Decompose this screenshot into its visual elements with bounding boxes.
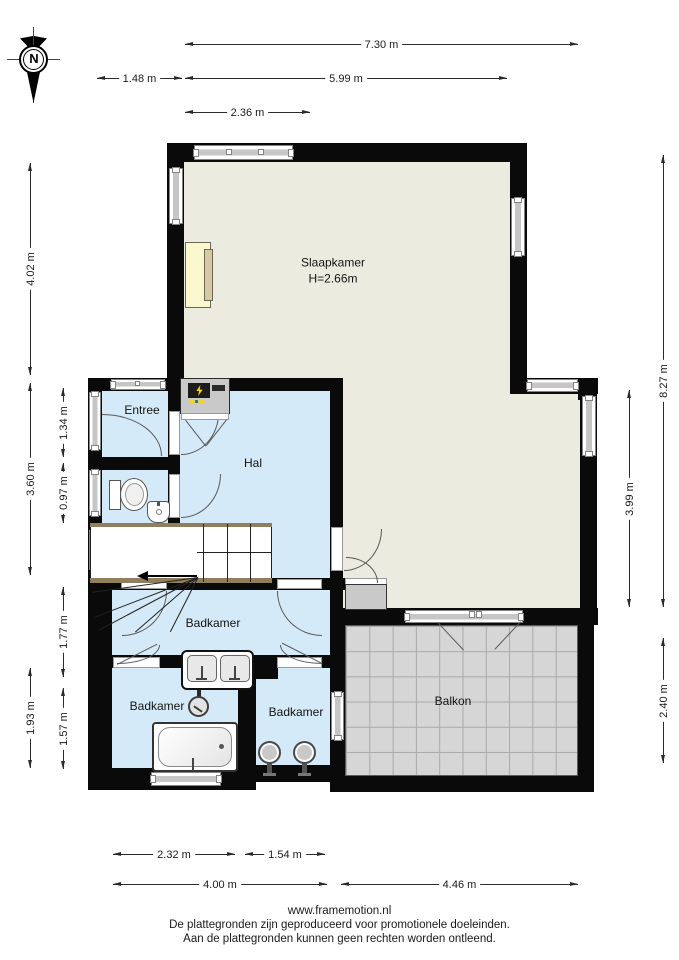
pedestal-sink-icon [293, 741, 316, 764]
wall [237, 765, 345, 782]
dim-arrow [61, 761, 65, 769]
wall [88, 578, 112, 790]
dim-arrow [661, 755, 665, 763]
dim-arrow [317, 852, 325, 856]
room-label-badkamer-mid: Badkamer [269, 705, 324, 721]
balcony-door-post [469, 611, 475, 618]
bed-headboard [204, 249, 213, 301]
balcony-doors-glass [405, 610, 523, 623]
window-mullion [135, 381, 140, 386]
door-threshold [277, 579, 322, 589]
toilet-bowl-inner [125, 483, 144, 506]
dim-toilet-height: 0.97 m [63, 463, 64, 523]
compass-north-label: N [24, 51, 44, 66]
room-label-badkamer-main: Badkamer [186, 616, 241, 632]
window [89, 392, 101, 450]
bathtub-tap [192, 758, 194, 771]
window [89, 470, 101, 516]
pedestal-sink-icon [258, 741, 281, 764]
room-label-balkon: Balkon [435, 694, 472, 710]
closet [345, 584, 387, 610]
dim-arrow [661, 599, 665, 607]
dim-arrow [28, 668, 32, 676]
balcony-door-post [476, 611, 482, 618]
window [582, 396, 596, 456]
dim-label: 8.27 m [658, 360, 670, 402]
dim-right-width: 4.46 m [341, 884, 578, 885]
wall [88, 457, 180, 470]
footer-disclaimer-2: Aan de plattegronden kunnen geen rechten… [0, 933, 679, 945]
wall [578, 612, 594, 792]
dim-arrow [319, 882, 327, 886]
meter-led [195, 400, 198, 403]
meter-device [188, 383, 210, 398]
meter-side-box [212, 385, 225, 391]
dim-total-width: 7.30 m [185, 44, 578, 45]
dim-right-mid-height: 3.99 m [629, 390, 630, 607]
stair-arrow-head [137, 571, 148, 581]
room-label-badkamer-left: Badkamer [130, 699, 185, 715]
window [151, 772, 221, 786]
room-label-hal: Hal [244, 456, 262, 472]
dim-arrow [341, 882, 349, 886]
dim-arrow [28, 163, 32, 171]
bathtub-drain [219, 744, 224, 749]
dim-arrow [113, 882, 121, 886]
dim-label: 1.54 m [264, 849, 306, 861]
shower-icon [188, 696, 209, 717]
dim-label: 1.93 m [25, 697, 37, 739]
dim-arrow [174, 76, 182, 80]
dim-label: 2.36 m [227, 107, 269, 119]
dim-slaapkamer-height: 4.02 m [30, 163, 31, 375]
dim-label: 7.30 m [361, 39, 403, 51]
stairs-edge [90, 523, 272, 527]
dim-label: 2.32 m [153, 849, 195, 861]
wall [510, 143, 527, 390]
dim-arrow [185, 110, 193, 114]
dim-arrow [661, 155, 665, 163]
dim-label: 4.02 m [25, 248, 37, 290]
room-name: Slaapkamer [301, 255, 365, 271]
dim-arrow [113, 852, 121, 856]
pedestal-sink-base [263, 773, 276, 776]
footer-disclaimer-1: De plattegronden zijn geproduceerd voor … [0, 919, 679, 931]
window [169, 168, 183, 224]
meter-cabinet-icon [180, 378, 230, 414]
dim-arrow [627, 390, 631, 398]
window-mullion [226, 149, 232, 155]
lightning-bolt-icon [195, 385, 204, 396]
dim-left-offset: 1.48 m [97, 78, 182, 79]
footer-site: www.framemotion.nl [0, 905, 679, 917]
dim-arrow [570, 42, 578, 46]
compass-south-spike [27, 72, 40, 103]
dim-arrow [28, 367, 32, 375]
dim-badkamer-left-width: 2.32 m [113, 854, 235, 855]
dim-arrow [245, 852, 253, 856]
stair-tread [250, 524, 251, 582]
door-threshold [169, 411, 180, 455]
dim-arrow [627, 599, 631, 607]
dim-label: 4.46 m [439, 879, 481, 891]
dim-label: 1.34 m [58, 402, 70, 444]
dim-arrow [61, 688, 65, 696]
dim-balkon-height: 2.40 m [663, 638, 664, 763]
room-label-slaapkamer: Slaapkamer H=2.66m [301, 255, 365, 286]
meter-led [200, 400, 203, 403]
dim-arrow [61, 669, 65, 677]
dim-arrow [570, 882, 578, 886]
washbasin-drain [156, 509, 162, 515]
dim-label: 0.97 m [58, 472, 70, 514]
wall [256, 655, 278, 679]
dim-badkamer-height: 1.77 m [63, 587, 64, 677]
stair-tread [203, 524, 204, 582]
stair-arrow-shaft [147, 575, 197, 577]
stairs [90, 523, 272, 583]
dim-arrow [302, 110, 310, 114]
door-threshold [181, 413, 229, 420]
dim-arrow [28, 760, 32, 768]
dim-arrow [661, 638, 665, 646]
floor-slaapkamer-lower [343, 378, 580, 608]
dim-bath-height: 1.57 m [63, 688, 64, 769]
dim-total-height: 8.27 m [663, 155, 664, 607]
dim-arrow [61, 515, 65, 523]
window [511, 198, 525, 256]
dim-lower-height: 1.93 m [30, 668, 31, 768]
dim-arrow [185, 76, 193, 80]
dim-label: 1.57 m [58, 708, 70, 750]
dim-arrow [61, 449, 65, 457]
dim-label: 1.48 m [119, 73, 161, 85]
dim-arrow [61, 587, 65, 595]
dim-arrow [185, 42, 193, 46]
room-label-entree: Entree [124, 403, 159, 419]
window [331, 692, 344, 740]
dim-badkamer-mid-width: 1.54 m [245, 854, 325, 855]
dim-upper-width: 5.99 m [185, 78, 507, 79]
window [527, 379, 578, 392]
dim-arrow [28, 567, 32, 575]
dim-label: 4.00 m [199, 879, 241, 891]
floorplan-canvas: N [0, 0, 679, 960]
sink-tap [229, 678, 240, 680]
door-threshold [331, 527, 343, 571]
door-threshold [169, 474, 180, 518]
dim-arrow [97, 76, 105, 80]
pedestal-sink-base [298, 773, 311, 776]
sink-tap [196, 678, 207, 680]
stair-tread [227, 524, 228, 582]
dim-arrow [227, 852, 235, 856]
dim-label: 3.60 m [25, 458, 37, 500]
stair-tread [197, 552, 272, 553]
wall [330, 776, 592, 792]
dim-label: 5.99 m [325, 73, 367, 85]
room-height: H=2.66m [301, 271, 365, 287]
dim-label: 3.99 m [624, 478, 636, 520]
window-mullion [258, 149, 264, 155]
meter-led [190, 400, 193, 403]
dim-arrow [61, 388, 65, 396]
dim-left-width: 4.00 m [113, 884, 327, 885]
dim-arrow [28, 383, 32, 391]
dim-window-width: 2.36 m [185, 112, 310, 113]
window [194, 145, 293, 160]
washbasin-tap [157, 501, 160, 506]
dim-label: 1.77 m [58, 611, 70, 653]
dim-arrow [499, 76, 507, 80]
dim-arrow [61, 463, 65, 471]
dim-label: 2.40 m [658, 680, 670, 722]
dim-entree-height: 1.34 m [63, 388, 64, 457]
dim-mid-height: 3.60 m [30, 383, 31, 575]
